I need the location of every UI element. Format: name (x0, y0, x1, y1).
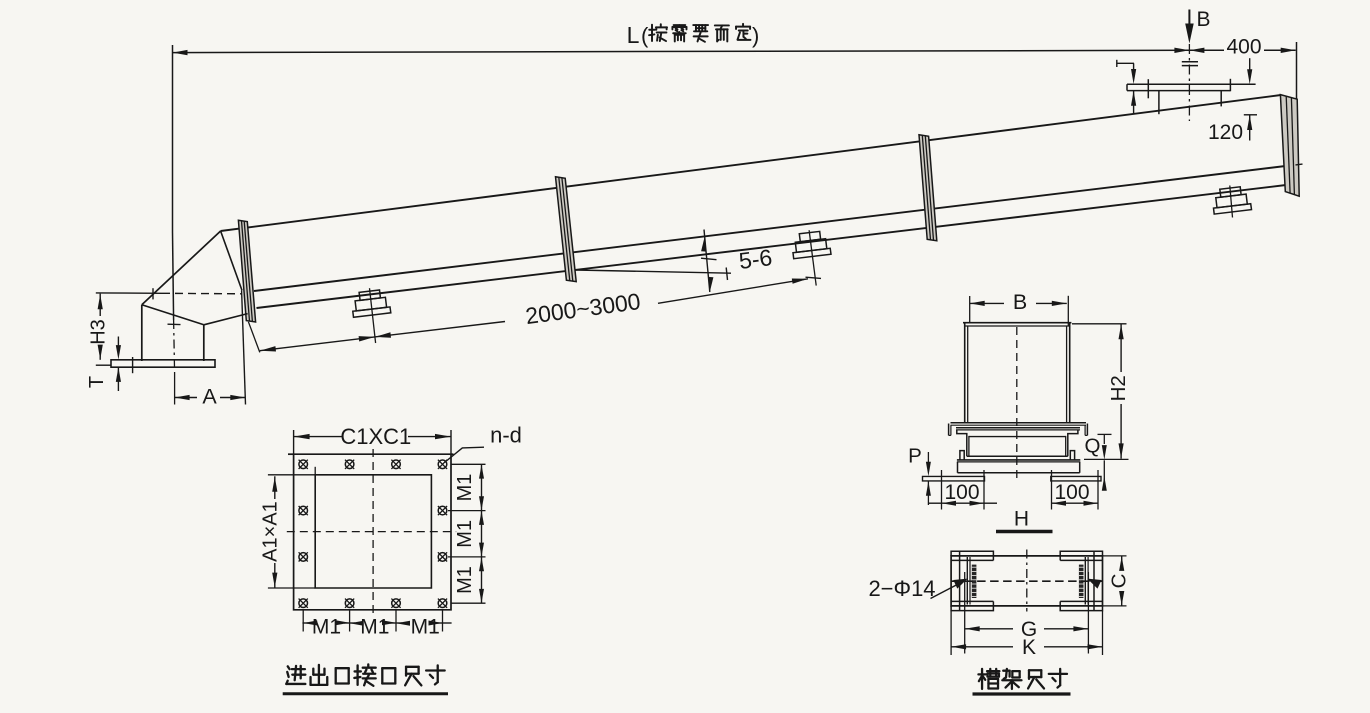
svg-text:P: P (908, 445, 922, 468)
svg-text:120: 120 (1208, 121, 1243, 144)
svg-text:C1XC1: C1XC1 (340, 424, 411, 449)
svg-text:A: A (202, 385, 217, 409)
svg-text:B: B (1013, 290, 1027, 314)
svg-text:(: ( (641, 23, 649, 48)
svg-text:M1: M1 (360, 616, 389, 639)
svg-text:400: 400 (1226, 36, 1261, 59)
svg-text:2−Φ14: 2−Φ14 (868, 576, 935, 601)
svg-text:T: T (86, 376, 108, 388)
svg-text:M1: M1 (454, 520, 476, 548)
svg-text:B: B (1196, 8, 1210, 31)
svg-text:K: K (1022, 636, 1036, 659)
svg-text:100: 100 (1054, 481, 1089, 504)
svg-text:H2: H2 (1107, 375, 1130, 401)
svg-text:M1: M1 (411, 616, 440, 639)
svg-text:H: H (1014, 508, 1029, 531)
svg-text:M1: M1 (454, 566, 476, 594)
svg-text:L: L (627, 22, 640, 48)
svg-text:100: 100 (944, 481, 979, 504)
svg-text:M1: M1 (312, 616, 341, 639)
svg-text:A1×A1: A1×A1 (260, 501, 282, 562)
svg-text:M1: M1 (454, 474, 476, 502)
svg-text:2000~3000: 2000~3000 (524, 288, 642, 329)
svg-text:5-6: 5-6 (737, 244, 773, 274)
svg-text:H3: H3 (88, 319, 110, 345)
svg-text:C: C (1108, 573, 1131, 588)
svg-text:): ) (752, 23, 759, 48)
svg-text:n-d: n-d (490, 423, 522, 448)
svg-text:Q: Q (1085, 435, 1101, 458)
